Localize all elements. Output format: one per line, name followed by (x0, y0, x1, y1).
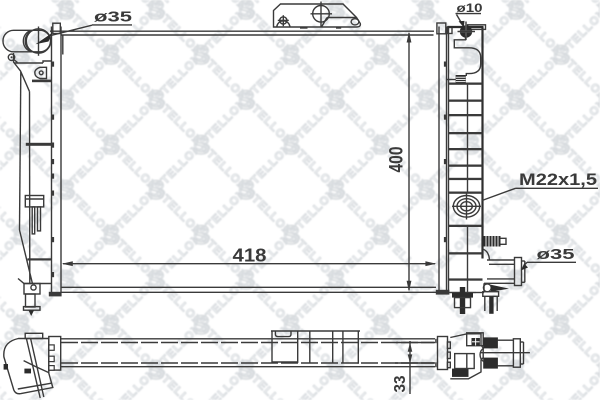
svg-text:M22x1,5: M22x1,5 (519, 170, 597, 189)
svg-text:ø35: ø35 (537, 246, 575, 263)
svg-text:ø10: ø10 (457, 1, 483, 15)
svg-text:ø35: ø35 (94, 9, 132, 26)
svg-text:33: 33 (392, 375, 409, 392)
svg-text:400: 400 (387, 147, 408, 173)
svg-text:418: 418 (233, 245, 267, 266)
